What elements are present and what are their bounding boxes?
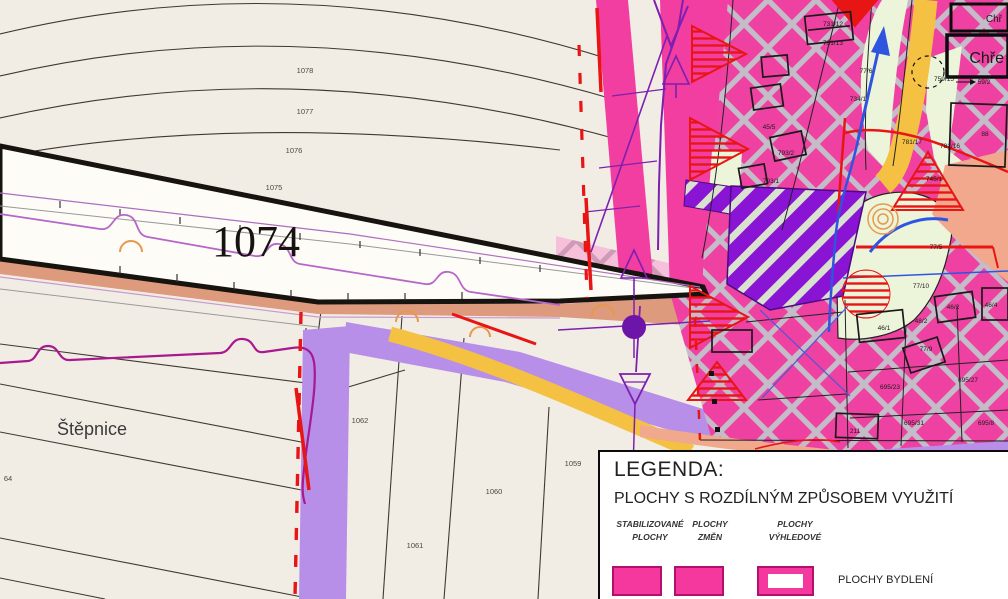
legend-col-changes: PLOCHYZMĚN: [678, 518, 742, 544]
legend-subtitle: PLOCHY S ROZDÍLNÝM ZPŮSOBEM VYUŽITÍ: [614, 490, 953, 508]
legend-swatch-prospective: [757, 566, 814, 596]
legend-panel: LEGENDA: PLOCHY S ROZDÍLNÝM ZPŮSOBEM VYU…: [598, 450, 1008, 599]
legend-swatch-changes: [674, 566, 724, 596]
parcel-label: 731/12: [823, 21, 843, 28]
parcel-label: 1060: [486, 487, 503, 496]
zoning-map-viewport[interactable]: Chř Chře 1078107710761075106210591060106…: [0, 0, 1008, 599]
parcel-label: 695/31: [904, 420, 924, 427]
parcel-label: 45/5: [763, 124, 776, 131]
parcel-label: 1077: [297, 107, 314, 116]
legend-swatch-stabilized: [612, 566, 662, 596]
parcel-label: 77/5: [930, 244, 943, 251]
parcel-label: 211: [850, 428, 861, 435]
parcel-label: 695/27: [958, 377, 978, 384]
parcel-label: 59/2: [978, 79, 991, 86]
parcel-label: 1075: [266, 183, 283, 192]
parcel-label: 1076: [286, 146, 303, 155]
parcel-label: 781/16: [940, 143, 960, 150]
parcel-label: 48/2: [915, 318, 928, 325]
parcel-label: 1061: [407, 541, 424, 550]
area-name-label: Štěpnice: [57, 418, 127, 439]
parcel-label: 734/1: [850, 96, 867, 103]
parcel-label: 781/17: [902, 139, 922, 146]
utility-node-circle: [622, 315, 646, 339]
parcel-label: 1078: [297, 66, 314, 75]
parcel-label: 1062: [352, 416, 369, 425]
parcel-label: 793/2: [778, 150, 795, 157]
parcel-label: 77/9: [920, 346, 933, 353]
legend-title: LEGENDA:: [614, 458, 724, 482]
legend-col-prospective: PLOCHYVÝHLEDOVÉ: [750, 518, 840, 544]
parcel-label: 1059: [565, 459, 582, 468]
parcel-label: 46/4: [985, 302, 998, 309]
parcel-label: 731/13: [823, 40, 843, 47]
street-label-large: Chře: [969, 50, 1004, 67]
road-number-label: 1074: [212, 217, 300, 266]
parcel-label: 46/2: [947, 304, 960, 311]
legend-item-label: PLOCHY BYDLENÍ: [838, 574, 933, 586]
parcel-label: 77/6: [860, 68, 873, 75]
parcel-label: 695/8: [978, 420, 995, 427]
parcel-label: 46/1: [878, 325, 891, 332]
parcel-label: 64: [4, 474, 12, 483]
parcel-label: 695/23: [880, 384, 900, 391]
parcel-label: 745/1: [926, 176, 943, 183]
parcel-label: 759/15: [934, 76, 954, 83]
parcel-label: 88: [981, 131, 989, 138]
parcel-label: 793/1: [763, 178, 780, 185]
street-label-small: Chř: [986, 14, 1003, 25]
parcel-label: 77/10: [913, 283, 930, 290]
